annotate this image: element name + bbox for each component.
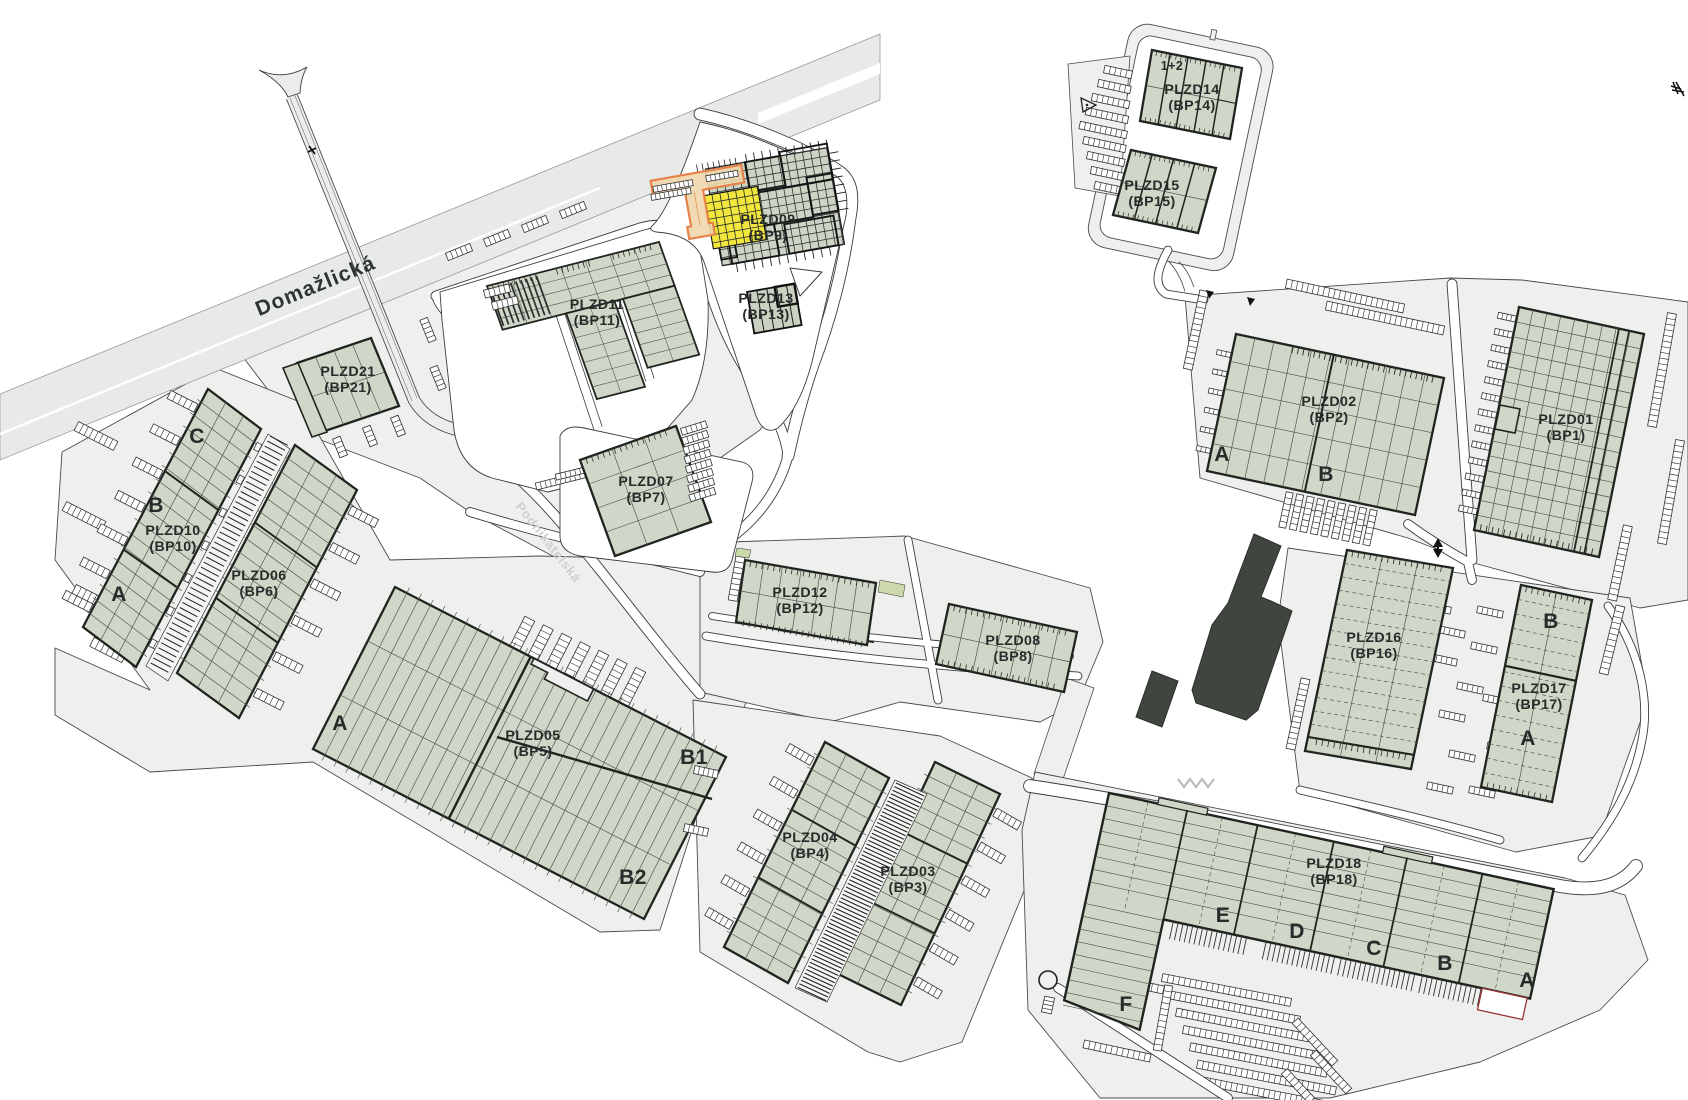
svg-text:B: B bbox=[1543, 610, 1559, 633]
svg-text:(BP5): (BP5) bbox=[513, 744, 552, 760]
svg-text:(BP1): (BP1) bbox=[1546, 428, 1585, 444]
svg-text:PLZD14: PLZD14 bbox=[1164, 82, 1219, 98]
svg-text:PLZD11: PLZD11 bbox=[570, 297, 624, 313]
svg-text:PLZD08: PLZD08 bbox=[985, 633, 1040, 649]
svg-text:PLZD10: PLZD10 bbox=[145, 523, 200, 539]
svg-text:PLZD18: PLZD18 bbox=[1306, 856, 1361, 872]
svg-text:PLZD21: PLZD21 bbox=[320, 364, 375, 380]
svg-text:(BP7): (BP7) bbox=[626, 490, 665, 506]
svg-text:PLZD03: PLZD03 bbox=[880, 864, 935, 880]
svg-text:A: A bbox=[1214, 443, 1230, 466]
svg-text:B: B bbox=[1437, 952, 1453, 975]
svg-text:B: B bbox=[1318, 463, 1334, 486]
svg-text:PLZD05: PLZD05 bbox=[505, 728, 560, 744]
svg-text:PLZD15: PLZD15 bbox=[1124, 178, 1179, 194]
svg-text:(BP10): (BP10) bbox=[149, 539, 196, 555]
svg-text:PLZD16: PLZD16 bbox=[1346, 630, 1401, 646]
svg-text:(BP8): (BP8) bbox=[993, 649, 1032, 665]
svg-text:PLZD04: PLZD04 bbox=[782, 830, 837, 846]
svg-text:B1: B1 bbox=[680, 746, 708, 769]
svg-text:C: C bbox=[1366, 937, 1382, 960]
svg-text:PLZD13: PLZD13 bbox=[738, 291, 793, 307]
svg-text:(BP11): (BP11) bbox=[574, 313, 621, 329]
svg-text:PLZD09: PLZD09 bbox=[740, 212, 795, 228]
svg-text:(BP14): (BP14) bbox=[1168, 98, 1215, 114]
svg-text:B2: B2 bbox=[619, 866, 647, 889]
svg-text:C: C bbox=[189, 425, 205, 448]
svg-text:A: A bbox=[1520, 727, 1536, 750]
svg-text:(BP17): (BP17) bbox=[1515, 697, 1562, 713]
svg-text:PLZD12: PLZD12 bbox=[772, 585, 827, 601]
svg-text:1+2: 1+2 bbox=[1161, 59, 1183, 73]
svg-text:A: A bbox=[332, 712, 348, 735]
svg-text:F: F bbox=[1119, 993, 1132, 1016]
svg-text:PLZD02: PLZD02 bbox=[1301, 394, 1356, 410]
svg-text:PLZD17: PLZD17 bbox=[1511, 681, 1566, 697]
svg-text:PLZD01: PLZD01 bbox=[1538, 412, 1593, 428]
svg-text:(BP15): (BP15) bbox=[1128, 194, 1175, 210]
svg-text:B: B bbox=[148, 494, 164, 517]
svg-text:(BP2): (BP2) bbox=[1309, 410, 1348, 426]
svg-text:(BP18): (BP18) bbox=[1310, 872, 1357, 888]
svg-text:(BP21): (BP21) bbox=[324, 380, 371, 396]
svg-text:PLZD06: PLZD06 bbox=[231, 568, 286, 584]
svg-text:(BP13): (BP13) bbox=[742, 307, 789, 323]
svg-text:E: E bbox=[1216, 904, 1230, 927]
svg-text:D: D bbox=[1289, 920, 1305, 943]
svg-text:(BP3): (BP3) bbox=[888, 880, 927, 896]
svg-text:(BP9): (BP9) bbox=[748, 228, 787, 244]
svg-text:A: A bbox=[1519, 969, 1535, 992]
svg-text:PLZD07: PLZD07 bbox=[618, 474, 673, 490]
svg-text:(BP6): (BP6) bbox=[239, 584, 278, 600]
svg-text:(BP4): (BP4) bbox=[790, 846, 829, 862]
svg-text:(BP12): (BP12) bbox=[776, 601, 823, 617]
svg-text:(BP16): (BP16) bbox=[1350, 646, 1397, 662]
svg-text:A: A bbox=[111, 583, 127, 606]
